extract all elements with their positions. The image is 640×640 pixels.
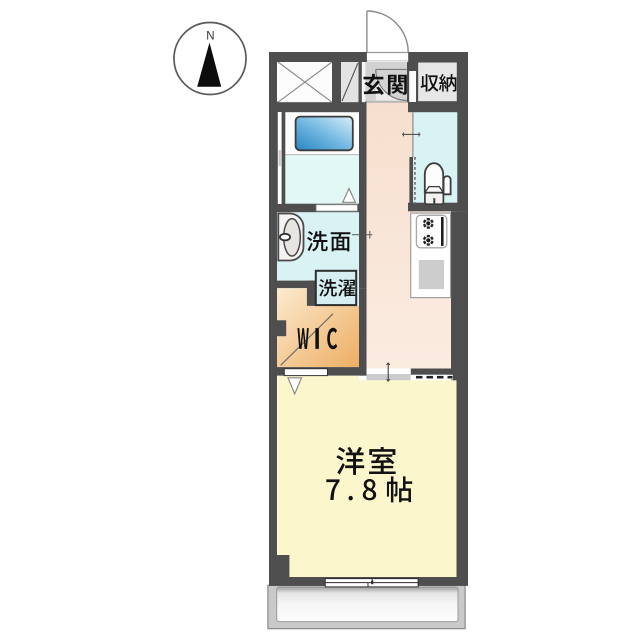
svg-text:N: N [206,31,214,43]
